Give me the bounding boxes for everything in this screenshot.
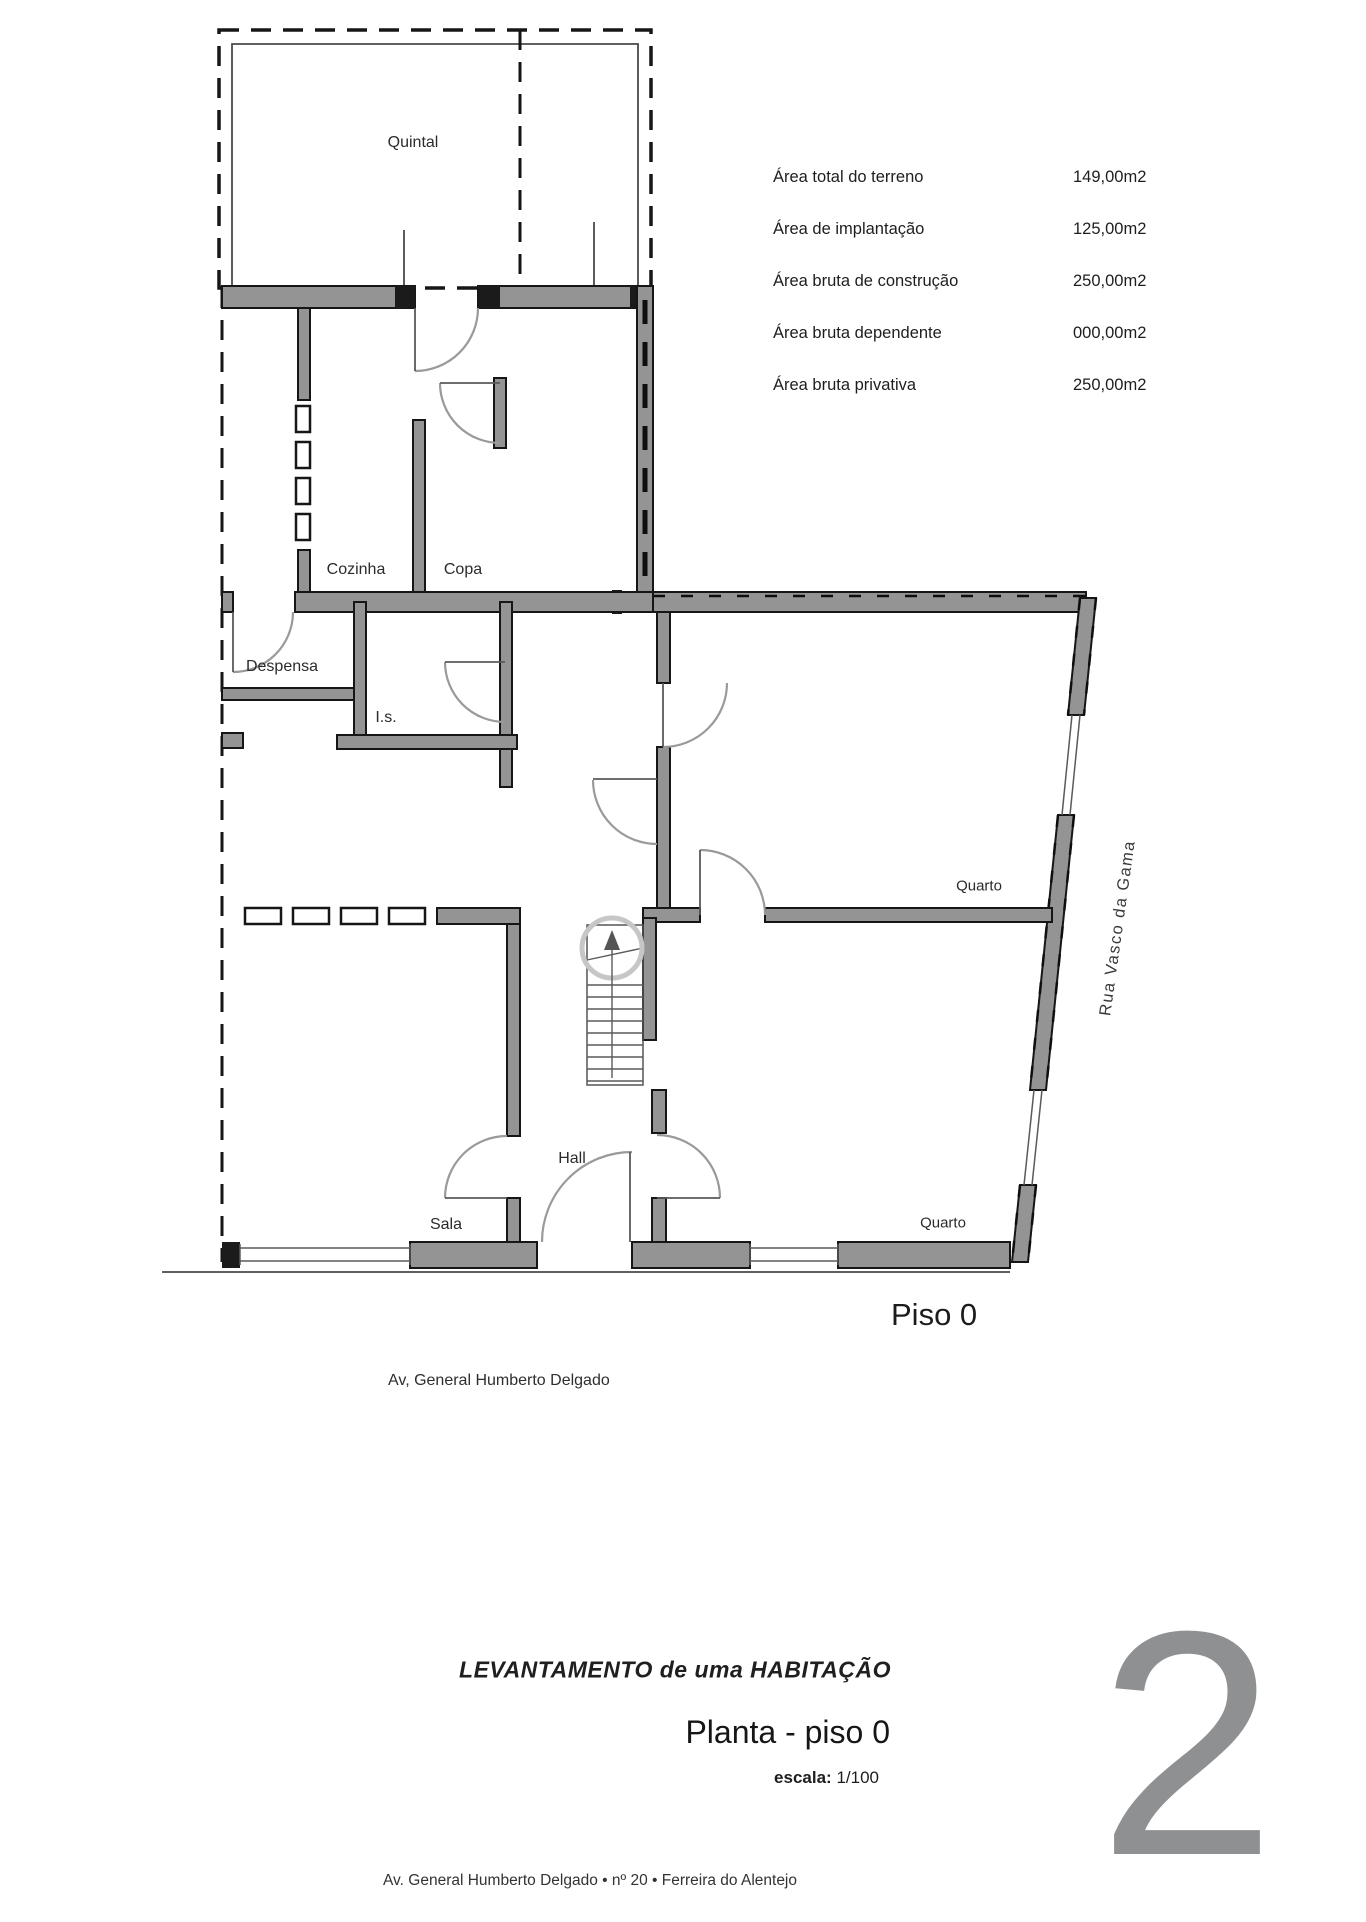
area-row-value: 000,00m2: [1073, 324, 1146, 343]
room-label-quarto-top: Quarto: [956, 878, 1002, 895]
room-label-cozinha: Cozinha: [327, 561, 386, 579]
area-row-label: Área total do terreno: [773, 168, 1073, 187]
stairs: [582, 918, 643, 1085]
area-row: Área de implantação 125,00m2: [773, 220, 1203, 239]
project-title: LEVANTAMENTO de uma HABITAÇÃO: [459, 1657, 891, 1684]
area-row: Área bruta privativa 250,00m2: [773, 376, 1203, 395]
drawing-title: Planta - piso 0: [685, 1714, 890, 1751]
scale-line: escala: 1/100: [774, 1768, 879, 1788]
area-row: Área bruta dependente 000,00m2: [773, 324, 1203, 343]
quintal-area: [219, 30, 651, 288]
area-row-label: Área bruta dependente: [773, 324, 1073, 343]
area-row-value: 250,00m2: [1073, 376, 1146, 395]
drawing-sheet: { "page": { "floor_label": "Piso 0", "sh…: [0, 0, 1366, 1920]
area-row: Área total do terreno 149,00m2: [773, 168, 1203, 187]
area-row-value: 149,00m2: [1073, 168, 1146, 187]
room-label-quarto-bottom: Quarto: [920, 1215, 966, 1232]
address-footer: Av. General Humberto Delgado • nº 20 • F…: [383, 1872, 797, 1890]
scale-label: escala:: [774, 1768, 832, 1787]
area-row: Área bruta de construção 250,00m2: [773, 272, 1203, 291]
area-summary: Área total do terreno 149,00m2 Área de i…: [773, 168, 1203, 428]
room-label-despensa: Despensa: [246, 658, 318, 676]
room-label-copa: Copa: [444, 561, 482, 579]
room-label-hall: Hall: [558, 1150, 586, 1168]
area-row-label: Área bruta privativa: [773, 376, 1073, 395]
area-row-label: Área de implantação: [773, 220, 1073, 239]
room-label-sala: Sala: [430, 1216, 462, 1234]
floor-label: Piso 0: [891, 1297, 977, 1333]
room-label-is: I.s.: [375, 709, 396, 727]
area-row-label: Área bruta de construção: [773, 272, 1073, 291]
street-label-bottom: Av, General Humberto Delgado: [388, 1372, 610, 1390]
scale-value: 1/100: [836, 1768, 879, 1787]
sheet-number: 2: [1098, 1598, 1276, 1888]
area-row-value: 250,00m2: [1073, 272, 1146, 291]
room-label-quintal: Quintal: [388, 134, 439, 152]
area-row-value: 125,00m2: [1073, 220, 1146, 239]
